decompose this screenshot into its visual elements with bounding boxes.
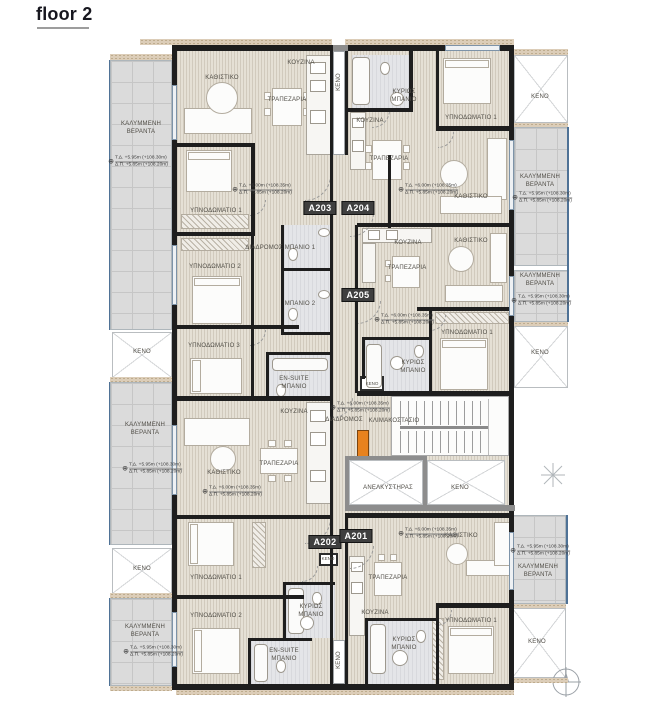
toilet — [288, 308, 298, 321]
wall — [357, 223, 513, 227]
wall-concrete — [333, 45, 348, 51]
room-label: ΚΕΝΟ — [336, 651, 344, 669]
level-mark: ⊕Τ.Δ. +6.00m (+108.35m)Δ.Π. +5.85m (+108… — [398, 184, 458, 197]
kitchen-appliance — [310, 410, 326, 422]
window — [509, 532, 514, 590]
level-text: Τ.Δ. +6.00m (+108.35m)Δ.Π. +5.85m (+108.… — [405, 184, 458, 197]
window — [172, 425, 177, 495]
toilet — [414, 345, 424, 358]
level-symbol-icon: ⊕ — [232, 187, 238, 194]
bathtub — [352, 57, 370, 105]
room-label: ΚΕΝΟ — [366, 381, 379, 387]
room-label: ΚΑΛΥΜΜΕΝΗ ΒΕΡΑΝΤΑ — [520, 273, 560, 289]
level-mark: ⊕Τ.Δ. +5.95m (+108.30m)Δ.Π. +5.85m (+108… — [511, 295, 571, 308]
wall — [362, 337, 365, 379]
hatch-band — [512, 678, 568, 683]
room-label: ΚΟΥΖΙΝΑ — [280, 409, 307, 417]
level-text: Τ.Δ. +6.00m (+108.35m)Δ.Π. +5.85m (+108.… — [209, 486, 262, 499]
stair-rail — [400, 426, 488, 429]
stair-flight-lower — [400, 431, 488, 453]
level-symbol-icon: ⊕ — [510, 548, 516, 555]
level-text: Τ.Δ. +6.00m (+108.35m)Δ.Π. +5.85m (+108.… — [337, 402, 390, 415]
wall — [266, 352, 269, 398]
rug-circle — [446, 543, 468, 565]
kitchen-appliance — [310, 80, 326, 92]
hatch-band — [176, 690, 514, 695]
room-label: ΤΡΑΠΕΖΑΡΙΑ — [388, 265, 427, 273]
room-label: ΚΟΥΖΙΝΑ — [356, 118, 383, 126]
room-label: EN-SUITE ΜΠΑΝΙΟ — [279, 376, 309, 392]
veranda-edge-line — [109, 60, 110, 330]
rug-circle — [210, 446, 236, 472]
wall — [365, 618, 368, 684]
room-label: ΚΕΝΟ — [531, 94, 549, 102]
room-label: ΚΕΝΟ — [451, 485, 469, 493]
level-symbol-icon: ⊕ — [511, 298, 517, 305]
floor-plan-canvas: floor 2 — [0, 0, 646, 701]
window — [445, 45, 500, 51]
level-symbol-icon: ⊕ — [123, 649, 129, 656]
hatch-band — [110, 686, 172, 691]
plant-icon — [540, 462, 566, 488]
room-label: ΜΠΑΝΙΟ 2 — [285, 301, 316, 309]
room-label: ΥΠΝΟΔΩΜΑΤΙΟ 1 — [441, 330, 493, 338]
hatch-band — [110, 54, 172, 60]
hatch-band — [110, 593, 172, 598]
room-label: ΤΡΑΠΕΖΑΡΙΑ — [260, 461, 299, 469]
staircase — [391, 396, 509, 456]
wall — [365, 618, 437, 621]
wall — [281, 225, 284, 335]
room-label: ΑΝΕΛΚΥΣΤΗΡΑΣ — [363, 485, 413, 493]
sofa — [445, 285, 503, 302]
veranda-right-bottom — [512, 515, 566, 604]
wall — [436, 51, 439, 129]
hatch-band — [514, 49, 568, 55]
level-symbol-icon: ⊕ — [398, 187, 404, 194]
room-label: ΚΕΝΟ — [531, 350, 549, 358]
wall — [177, 143, 255, 147]
rug-circle — [206, 82, 238, 114]
elevator-shaft — [349, 460, 423, 505]
window — [172, 85, 177, 140]
apartment-badge-a204: A204 — [341, 201, 374, 215]
wall — [355, 225, 358, 393]
chair — [268, 440, 276, 447]
level-mark: ⊕Τ.Δ. +5.95m (+108.30m)Δ.Π. +5.85m (+108… — [122, 463, 182, 476]
level-text: Τ.Δ. +5.95m (+108.30m)Δ.Π. +5.85m (+108.… — [130, 646, 183, 659]
kitchen-appliance — [310, 470, 326, 482]
wall — [248, 638, 312, 641]
toilet — [416, 630, 426, 643]
room-label: ΤΡΑΠΕΖΑΡΙΑ — [369, 575, 408, 583]
room-label: ΚΥΡΙΩΣ ΜΠΑΝΙΟ — [298, 604, 323, 620]
level-text: Τ.Δ. +6.00m (+108.35m)Δ.Π. +5.85m (+108.… — [381, 314, 434, 327]
room-label: ΚΑΛΥΜΜΕΝΗ ΒΕΡΑΝΤΑ — [518, 564, 558, 580]
wall — [346, 513, 513, 518]
room-label: ΥΠΝΟΔΩΜΑΤΙΟ 1 — [190, 208, 242, 216]
apartment-badge-a202: A202 — [308, 535, 341, 549]
level-text: Τ.Δ. +6.00m (+108.35m)Δ.Π. +5.85m (+108.… — [239, 184, 292, 197]
page-title: floor 2 — [36, 4, 92, 25]
wall — [388, 155, 391, 228]
veranda-edge-line — [109, 598, 110, 686]
title-underline — [37, 27, 89, 29]
kitchen-appliance — [310, 110, 326, 124]
level-symbol-icon: ⊕ — [122, 466, 128, 473]
room-label: ΚΕΝΟ — [336, 73, 344, 91]
veranda-left-top — [110, 60, 172, 330]
bathtub — [272, 358, 328, 371]
bed-pillow — [194, 278, 240, 286]
level-mark: ⊕Τ.Δ. +6.00m (+108.35m)Δ.Π. +5.85m (+108… — [374, 314, 434, 327]
wall — [172, 684, 514, 690]
wall — [248, 638, 251, 684]
bed-pillow — [450, 628, 492, 636]
washer-or-sink — [318, 290, 330, 299]
kitchen-counter — [362, 243, 376, 283]
hatch-band — [514, 322, 568, 326]
wall-concrete — [423, 460, 427, 505]
wall — [172, 515, 332, 519]
wall — [172, 396, 333, 401]
level-mark: ⊕Τ.Δ. +6.00m (+108.35m)Δ.Π. +5.85m (+108… — [330, 402, 390, 415]
room-label: ΤΡΑΠΕΖΑΡΙΑ — [370, 156, 409, 164]
level-symbol-icon: ⊕ — [512, 195, 518, 202]
bed-pillow — [445, 60, 489, 68]
room-label: ΥΠΝΟΔΩΜΑΤΙΟ 2 — [189, 264, 241, 272]
bed-pillow — [190, 524, 198, 564]
kitchen-appliance — [386, 230, 398, 240]
chair — [264, 108, 271, 116]
room-label: ΚΟΥΖΙΝΑ — [394, 240, 421, 248]
void-right-top — [514, 55, 568, 123]
sofa — [490, 233, 507, 283]
room-label: ΚΑΘΙΣΤΙΚΟ — [454, 194, 488, 202]
dining-table — [272, 88, 302, 126]
room-label: ΔΙΑΔΡΟΜΟΣ — [245, 245, 283, 253]
hatch-band — [512, 604, 566, 608]
wall — [330, 155, 333, 398]
room-label: ΚΟΥΖΙΝΑ — [287, 60, 314, 68]
room-label: ΜΠΑΝΙΟ 1 — [285, 245, 316, 253]
wall — [330, 51, 333, 155]
apartment-badge-a205: A205 — [341, 288, 374, 302]
room-label: ΚΕΝΟ — [133, 349, 151, 357]
level-mark: ⊕Τ.Δ. +6.00m (+108.35m)Δ.Π. +5.85m (+108… — [202, 486, 262, 499]
level-mark: ⊕Τ.Δ. +5.95m (+108.30m)Δ.Π. +5.85m (+108… — [123, 646, 183, 659]
room-label: ΚΕΝΟ — [528, 639, 546, 647]
sofa — [487, 138, 507, 200]
apartment-badge-a201: A201 — [339, 529, 372, 543]
toilet — [312, 592, 322, 605]
wardrobe — [252, 522, 266, 568]
chair — [268, 475, 276, 482]
rug-circle — [448, 246, 474, 272]
sofa — [184, 418, 250, 446]
level-text: Τ.Δ. +5.95m (+108.30m)Δ.Π. +5.85m (+108.… — [115, 156, 168, 169]
wall — [172, 45, 333, 51]
room-label: ΤΡΑΠΕΖΑΡΙΑ — [268, 97, 307, 105]
wall — [251, 236, 254, 398]
wardrobe — [181, 238, 249, 251]
level-text: Τ.Δ. +6.00m (+108.35m)Δ.Π. +5.85m (+108.… — [405, 528, 458, 541]
room-label: ΚΑΛΥΜΜΕΝΗ ΒΕΡΑΝΤΑ — [125, 422, 165, 438]
sofa — [494, 522, 510, 566]
hatch-band — [514, 123, 568, 127]
chair — [390, 554, 397, 561]
wall — [348, 108, 412, 112]
shaft-top — [333, 51, 345, 155]
chair — [284, 440, 292, 447]
level-mark: ⊕Τ.Δ. +5.95m (+108.30m)Δ.Π. +5.85m (+108… — [108, 156, 168, 169]
void-center — [427, 460, 505, 505]
wall — [281, 268, 333, 271]
room-label: ΚΕΝΟ — [133, 566, 151, 574]
room-label: ΥΠΝΟΔΩΜΑΤΙΟ 3 — [188, 343, 240, 351]
level-symbol-icon: ⊕ — [374, 317, 380, 324]
level-text: Τ.Δ. +5.95m (+108.30m)Δ.Π. +5.85m (+108.… — [519, 192, 572, 205]
level-symbol-icon: ⊕ — [202, 489, 208, 496]
level-mark: ⊕Τ.Δ. +6.00m (+108.35m)Δ.Π. +5.85m (+108… — [398, 528, 458, 541]
window — [172, 245, 177, 305]
level-symbol-icon: ⊕ — [108, 159, 114, 166]
room-label: ΚΟΥΖΙΝΑ — [361, 610, 388, 618]
veranda-edge-line — [567, 127, 569, 322]
level-symbol-icon: ⊕ — [398, 531, 404, 538]
wall-concrete — [345, 460, 349, 505]
room-label: ΥΠΝΟΔΩΜΑΤΙΟ 2 — [190, 613, 242, 621]
hatch-band — [110, 377, 172, 382]
room-label: ΚΑΘΙΣΤΙΚΟ — [205, 75, 239, 83]
room-label: ΥΠΝΟΔΩΜΑΤΙΟ 1 — [445, 115, 497, 123]
bed-pillow — [194, 630, 202, 672]
apartment-badge-a203: A203 — [303, 201, 336, 215]
level-mark: ⊕Τ.Δ. +5.95m (+108.30m)Δ.Π. +5.85m (+108… — [510, 545, 570, 558]
wardrobe — [181, 214, 249, 229]
bathtub — [370, 624, 386, 674]
room-label: ΚΑΛΥΜΜΕΝΗ ΒΕΡΑΝΤΑ — [121, 121, 161, 137]
room-label: ΥΠΝΟΔΩΜΑΤΙΟ 1 — [445, 618, 497, 626]
veranda-edge-line — [566, 515, 568, 604]
wall — [266, 352, 333, 355]
level-text: Τ.Δ. +5.95m (+108.30m)Δ.Π. +5.85m (+108.… — [129, 463, 182, 476]
chair — [403, 145, 410, 153]
bed-pillow — [188, 152, 230, 160]
wardrobe — [435, 312, 509, 324]
room-label: ΚΥΡΙΩΣ ΜΠΑΝΙΟ — [391, 89, 416, 105]
bed-pillow — [442, 340, 486, 348]
room-label: ΚΕΝΟ — [322, 556, 335, 562]
level-symbol-icon: ⊕ — [330, 405, 336, 412]
chair — [385, 275, 391, 282]
room-label: ΚΥΡΙΩΣ ΜΠΑΝΙΟ — [400, 360, 425, 376]
wall-concrete — [345, 456, 427, 460]
chair — [284, 475, 292, 482]
room-label: ΔΙΑΔΡΟΜΟΣ — [325, 417, 363, 425]
wall — [362, 337, 432, 340]
bed-pillow — [192, 360, 201, 392]
kitchen-appliance — [352, 140, 364, 152]
level-mark: ⊕Τ.Δ. +5.95m (+108.30m)Δ.Π. +5.85m (+108… — [512, 192, 572, 205]
chair — [365, 145, 372, 153]
wall — [345, 51, 348, 155]
chair — [378, 554, 385, 561]
kitchen-appliance — [368, 230, 380, 240]
wall — [177, 232, 255, 236]
room-label: EN-SUITE ΜΠΑΝΙΟ — [269, 648, 299, 664]
level-text: Τ.Δ. +5.95m (+108.30m)Δ.Π. +5.85m (+108.… — [517, 545, 570, 558]
wall — [283, 582, 335, 585]
bathtub — [254, 644, 268, 682]
wall — [436, 603, 513, 608]
veranda-left-bottom — [110, 598, 172, 686]
kitchen-appliance — [351, 582, 363, 594]
room-label: ΚΛΙΜΑΚΟΣΤΑΣΙΟ — [369, 418, 420, 426]
room-label: ΚΑΛΥΜΜΕΝΗ ΒΕΡΑΝΤΑ — [125, 624, 165, 640]
wall — [281, 332, 333, 335]
toilet — [380, 62, 390, 75]
kitchen-appliance — [310, 432, 326, 446]
washer-or-sink — [318, 228, 330, 237]
wall — [357, 391, 514, 396]
room-label: ΥΠΝΟΔΩΜΑΤΙΟ 1 — [190, 575, 242, 583]
wall — [436, 126, 513, 131]
window — [172, 612, 177, 667]
stair-landing-line — [488, 399, 489, 455]
wall-concrete — [345, 505, 515, 511]
veranda-edge-line — [109, 382, 110, 545]
room-label: ΚΑΘΙΣΤΙΚΟ — [454, 238, 488, 246]
wall — [283, 582, 286, 638]
room-label: ΚΑΘΙΣΤΙΚΟ — [207, 470, 241, 478]
level-mark: ⊕Τ.Δ. +6.00m (+108.35m)Δ.Π. +5.85m (+108… — [232, 184, 292, 197]
room-label: ΚΥΡΙΩΣ ΜΠΑΝΙΟ — [391, 637, 416, 653]
level-text: Τ.Δ. +5.95m (+108.30m)Δ.Π. +5.85m (+108.… — [518, 295, 571, 308]
room-label: ΚΑΛΥΜΜΕΝΗ ΒΕΡΑΝΤΑ — [520, 174, 560, 190]
